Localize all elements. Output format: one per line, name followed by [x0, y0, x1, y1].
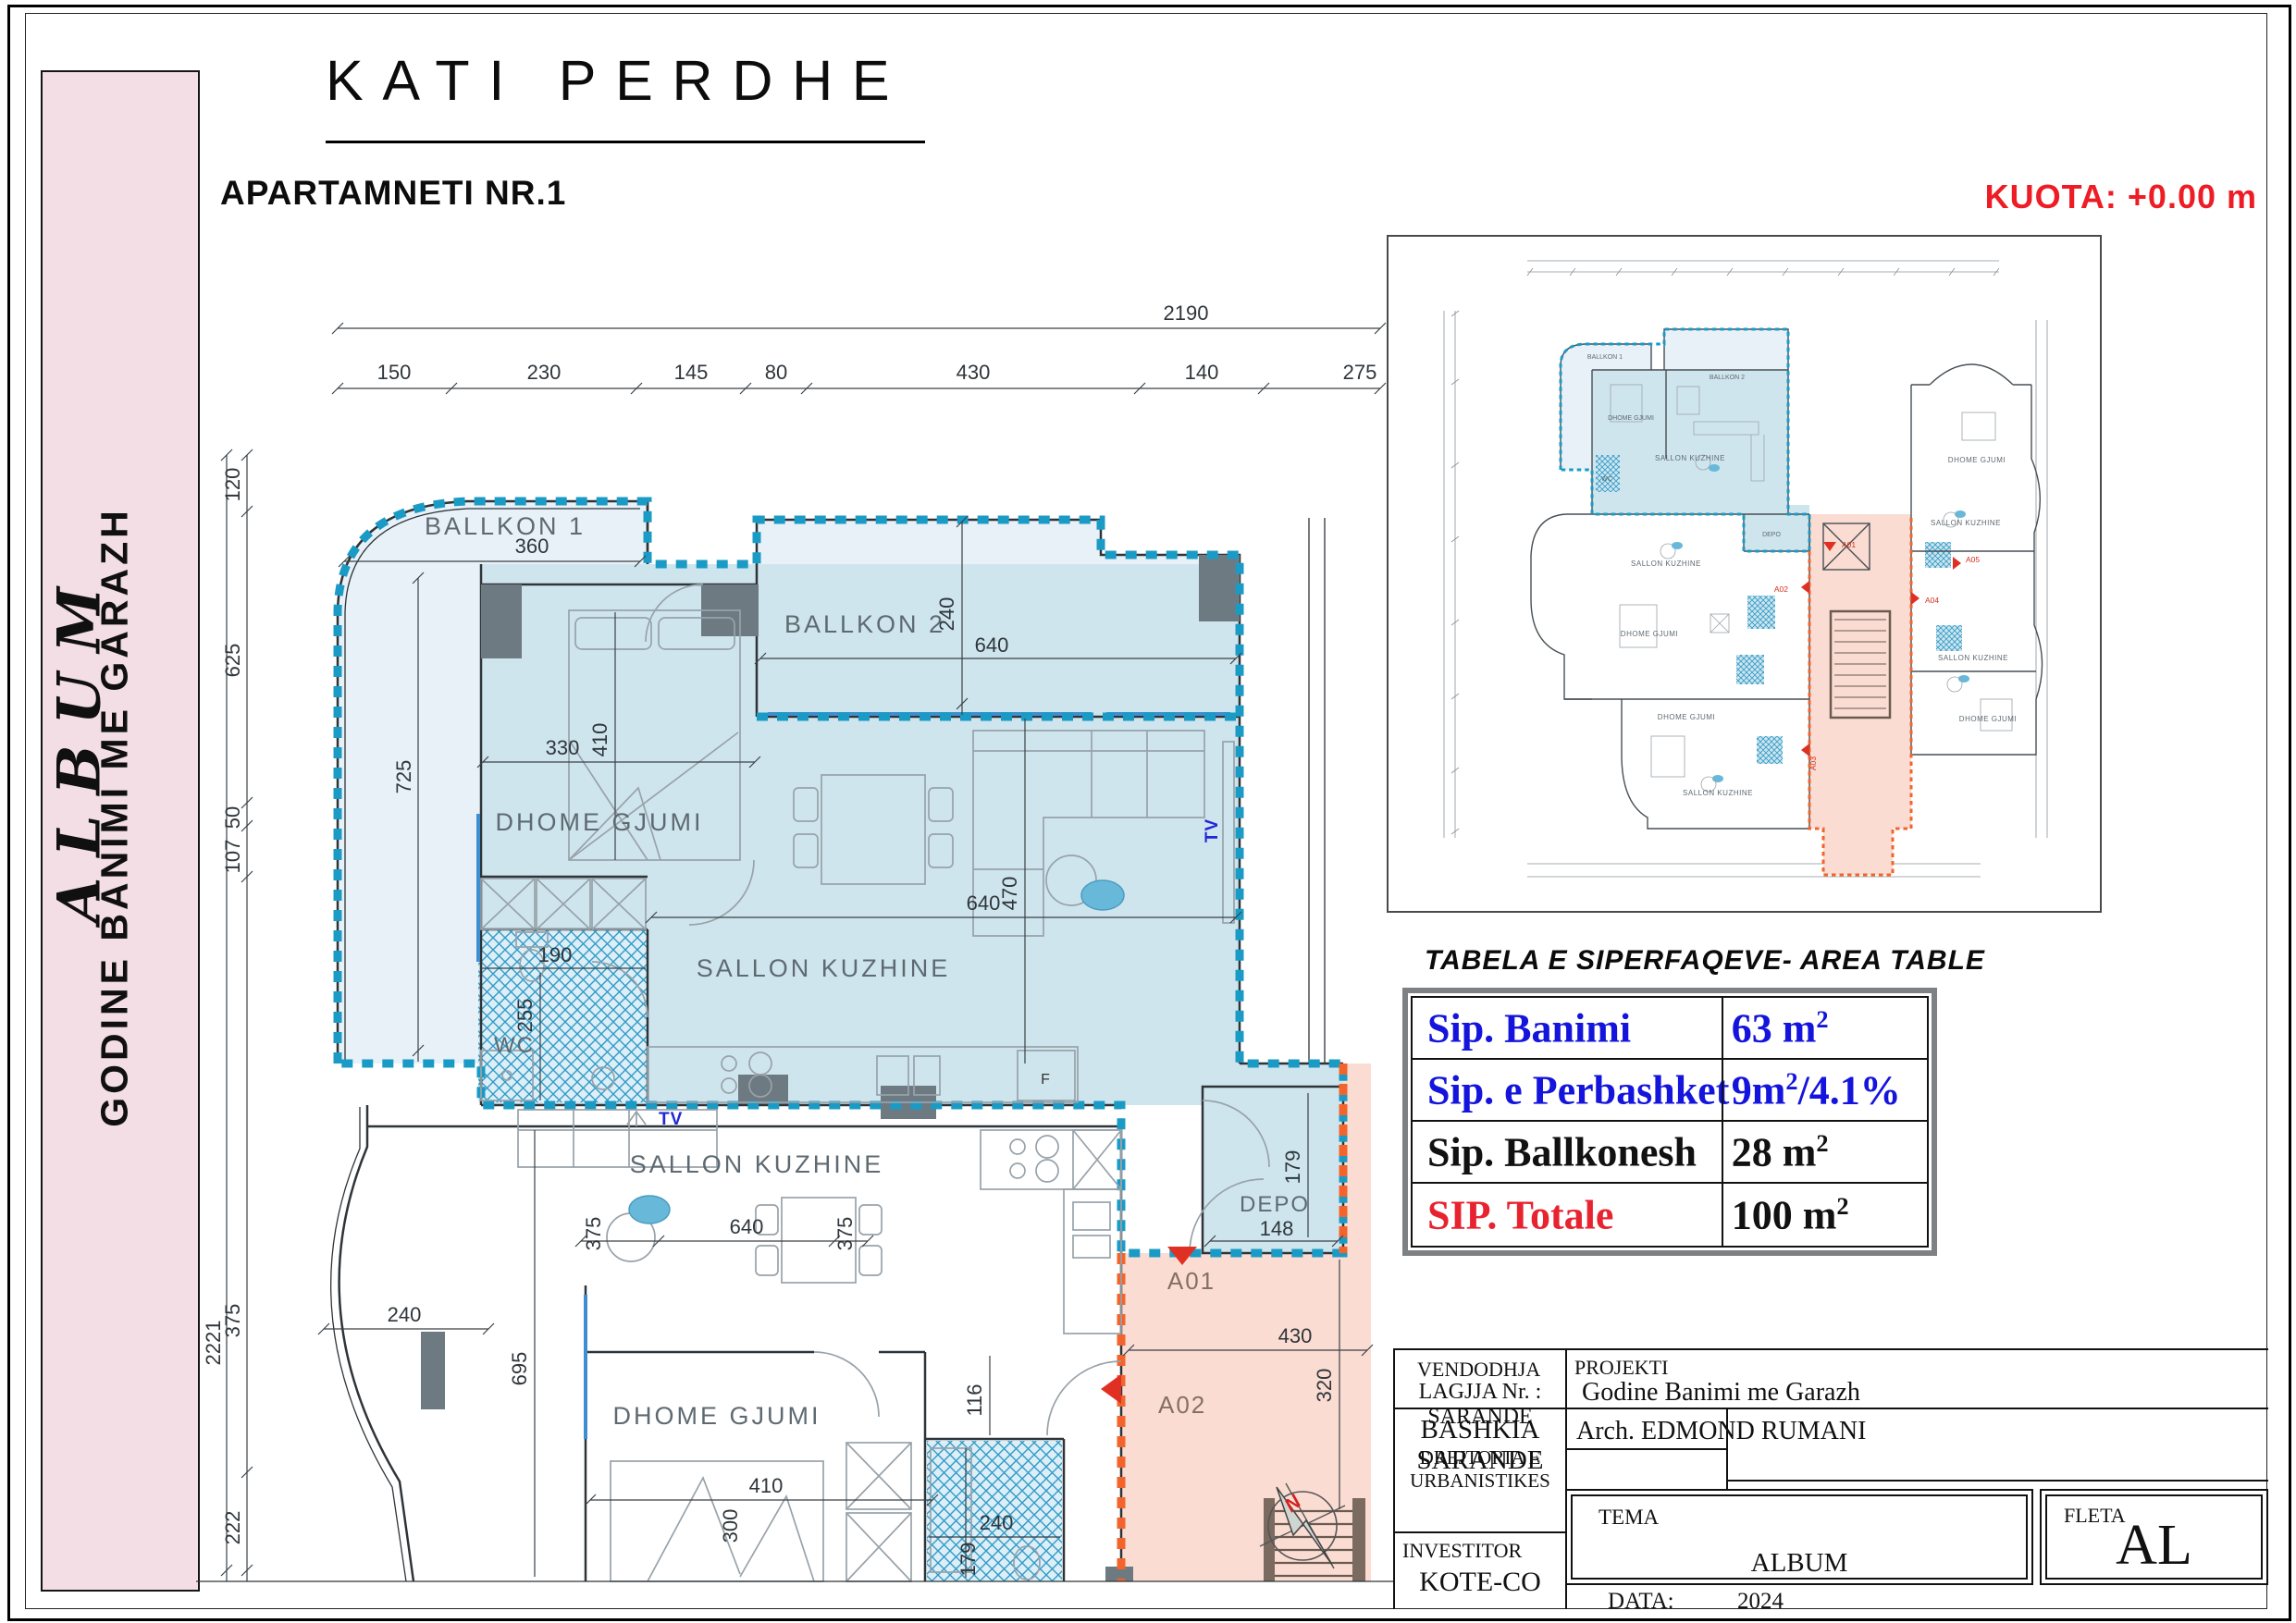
svg-text:A02: A02	[1158, 1391, 1206, 1419]
mini-fills	[1561, 329, 1962, 875]
svg-text:145: 145	[674, 361, 709, 384]
svg-text:SALLON KUZHINE: SALLON KUZHINE	[1938, 654, 2008, 662]
row-label: SIP. Totale	[1427, 1191, 1613, 1238]
label-ballkon1: BALLKON 1	[425, 512, 586, 540]
svg-text:BALLKON 2: BALLKON 2	[1710, 375, 1745, 381]
svg-text:179: 179	[957, 1543, 980, 1577]
page-title: KATI PERDHE	[326, 48, 908, 113]
apartment-subtitle: APARTAMNETI NR.1	[220, 174, 566, 213]
svg-text:190: 190	[538, 943, 573, 966]
svg-text:230: 230	[527, 361, 562, 384]
data-value: 2024	[1737, 1589, 1784, 1615]
left-sidebar: ALBUM GODINE BANIMI ME GARAZH	[41, 70, 200, 1592]
row-value: 28 m2	[1732, 1128, 1829, 1175]
wardrobe-lower	[846, 1443, 911, 1581]
svg-text:320: 320	[1313, 1369, 1336, 1403]
svg-text:255: 255	[513, 999, 537, 1033]
row-value: 100 m2	[1732, 1191, 1849, 1238]
fleta-value: AL	[2047, 1513, 2261, 1579]
svg-text:107: 107	[221, 840, 244, 874]
svg-text:410: 410	[588, 723, 611, 757]
svg-text:330: 330	[546, 736, 580, 759]
svg-text:A02: A02	[1774, 584, 1788, 594]
main-floor-plan: N A01 A02	[196, 277, 1393, 1583]
label-wc: WC	[494, 1033, 535, 1058]
mini-room-labels: BALLKON 1 BALLKON 2 DHOME GJUMI SALLON K…	[1587, 354, 2017, 797]
investitor-label: INVESTITOR	[1402, 1539, 1522, 1563]
svg-text:DHOME GJUMI: DHOME GJUMI	[1959, 715, 2017, 723]
svg-text:625: 625	[221, 644, 244, 678]
investitor-value: KOTE-CO	[1395, 1567, 1565, 1598]
svg-text:275: 275	[1343, 361, 1377, 384]
table-row: Sip. e Perbashket 9m2/4.1%	[1413, 1060, 1927, 1122]
svg-text:A01: A01	[1167, 1267, 1216, 1295]
area-table: Sip. Banimi 63 m2 Sip. e Perbashket 9m2/…	[1402, 988, 1937, 1256]
label-depo: DEPO	[1240, 1192, 1310, 1217]
table-row: Sip. Banimi 63 m2	[1413, 998, 1927, 1060]
label-ballkon2: BALLKON 2	[784, 610, 945, 638]
svg-text:300: 300	[719, 1509, 742, 1543]
svg-text:A01: A01	[1842, 540, 1856, 549]
svg-text:725: 725	[392, 760, 415, 794]
vendodhja-label: VENDODHJA	[1417, 1358, 1540, 1382]
table-row: SIP. Totale 100 m2	[1413, 1184, 1927, 1246]
svg-text:A05: A05	[1966, 555, 1980, 564]
row-label: Sip. Banimi	[1427, 1004, 1631, 1051]
svg-text:410: 410	[749, 1474, 784, 1497]
tema-label: TEMA	[1599, 1506, 1659, 1530]
svg-text:640: 640	[730, 1215, 764, 1238]
svg-text:640: 640	[967, 891, 1001, 915]
tema-value: ALBUM	[1573, 1548, 2026, 1579]
svg-text:A03: A03	[1808, 756, 1818, 770]
label-tv-upper: TV	[1203, 818, 1222, 842]
sidebar-subtitle-text: GODINE BANIMI ME GARAZH	[93, 327, 137, 1308]
svg-text:2190: 2190	[1164, 301, 1209, 325]
label-dhome-gjumi-lower: DHOME GJUMI	[613, 1402, 821, 1430]
svg-text:470: 470	[998, 877, 1021, 911]
svg-text:375: 375	[833, 1217, 857, 1251]
svg-text:430: 430	[957, 361, 991, 384]
row-label: Sip. Ballkonesh	[1427, 1128, 1697, 1175]
title-underline	[326, 141, 925, 143]
svg-text:WC: WC	[1601, 476, 1612, 483]
svg-text:DEPO: DEPO	[1762, 532, 1781, 538]
svg-text:240: 240	[980, 1511, 1014, 1534]
svg-text:SALLON KUZHINE: SALLON KUZHINE	[1931, 519, 2001, 527]
label-tv-lower: TV	[659, 1110, 683, 1129]
svg-text:120: 120	[221, 468, 244, 502]
svg-text:240: 240	[388, 1303, 422, 1326]
architect: Arch. EDMOND RUMANI	[1576, 1417, 1866, 1446]
svg-text:140: 140	[1185, 361, 1219, 384]
svg-text:BALLKON 1: BALLKON 1	[1587, 354, 1623, 361]
fleta-box: FLETA AL	[2040, 1489, 2268, 1585]
svg-text:DHOME GJUMI: DHOME GJUMI	[1948, 456, 2006, 464]
svg-text:640: 640	[975, 633, 1009, 657]
svg-text:695: 695	[508, 1352, 531, 1386]
svg-text:SALLON KUZHINE: SALLON KUZHINE	[1683, 789, 1753, 797]
label-sallon-upper: SALLON KUZHINE	[697, 954, 951, 982]
svg-text:DHOME GJUMI: DHOME GJUMI	[1608, 415, 1654, 422]
svg-text:148: 148	[1260, 1217, 1294, 1240]
label-fridge: F	[1041, 1072, 1050, 1088]
svg-text:179: 179	[1281, 1150, 1304, 1185]
data-label: DATA:	[1608, 1589, 1674, 1615]
projekti-value: Godine Banimi me Garazh	[1582, 1378, 1860, 1408]
svg-text:DHOME GJUMI: DHOME GJUMI	[1658, 713, 1715, 721]
row-value: 9m2/4.1%	[1732, 1066, 1901, 1113]
svg-text:430: 430	[1278, 1324, 1313, 1347]
svg-text:50: 50	[221, 806, 244, 829]
svg-text:DHOME GJUMI: DHOME GJUMI	[1621, 630, 1678, 638]
svg-text:150: 150	[377, 361, 412, 384]
svg-text:SALLON KUZHINE: SALLON KUZHINE	[1655, 454, 1725, 462]
drawing-sheet: ALBUM GODINE BANIMI ME GARAZH KATI PERDH…	[0, 0, 2296, 1623]
label-dhome-gjumi-upper: DHOME GJUMI	[496, 808, 704, 836]
title-block: VENDODHJA LAGJJA Nr. : SARANDE BASHKIA S…	[1393, 1348, 2268, 1609]
overview-floor-plan: BALLKON 1 BALLKON 2 DHOME GJUMI SALLON K…	[1389, 237, 2100, 911]
area-table-title: TABELA E SIPERFAQEVE- AREA TABLE	[1425, 945, 1985, 977]
kuota-label: KUOTA: +0.00 m	[1887, 178, 2257, 216]
drejtoria: DREJTORIA E URBANISTIKES	[1395, 1446, 1565, 1493]
svg-text:222: 222	[221, 1511, 244, 1545]
tema-box: TEMA ALBUM	[1565, 1489, 2033, 1585]
label-sallon-lower: SALLON KUZHINE	[630, 1150, 884, 1178]
svg-text:375: 375	[582, 1217, 605, 1251]
overview-plan-box: BALLKON 1 BALLKON 2 DHOME GJUMI SALLON K…	[1387, 235, 2102, 913]
svg-text:SALLON KUZHINE: SALLON KUZHINE	[1631, 559, 1701, 568]
projekti-label: PROJEKTI	[1574, 1356, 1668, 1380]
svg-text:375: 375	[221, 1304, 244, 1338]
table-row: Sip. Ballkonesh 28 m2	[1413, 1122, 1927, 1184]
plan-fills	[338, 501, 1371, 1581]
svg-text:A04: A04	[1925, 596, 1939, 605]
svg-text:80: 80	[765, 361, 787, 384]
svg-text:116: 116	[963, 1383, 986, 1416]
row-value: 63 m2	[1732, 1004, 1829, 1051]
row-label: Sip. e Perbashket	[1427, 1066, 1729, 1113]
